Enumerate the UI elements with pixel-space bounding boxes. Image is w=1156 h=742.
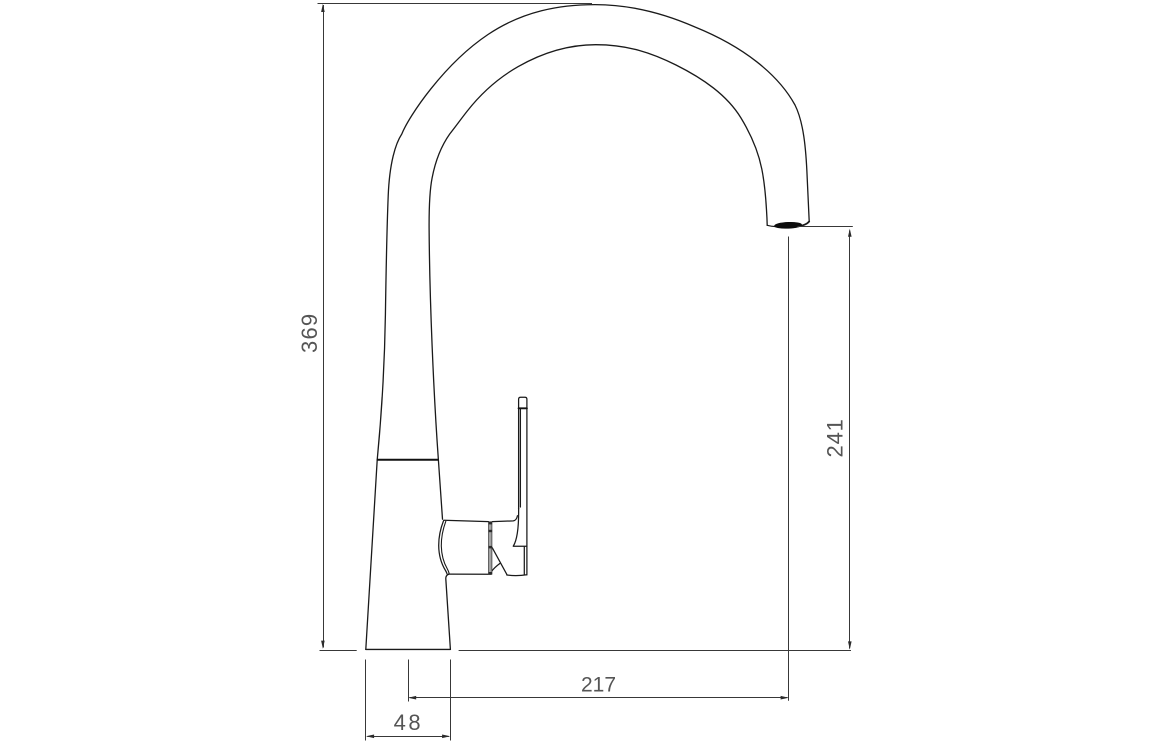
svg-text:241: 241 [822, 418, 847, 457]
svg-text:48: 48 [394, 710, 423, 735]
svg-text:369: 369 [297, 313, 322, 353]
svg-text:217: 217 [581, 673, 616, 696]
